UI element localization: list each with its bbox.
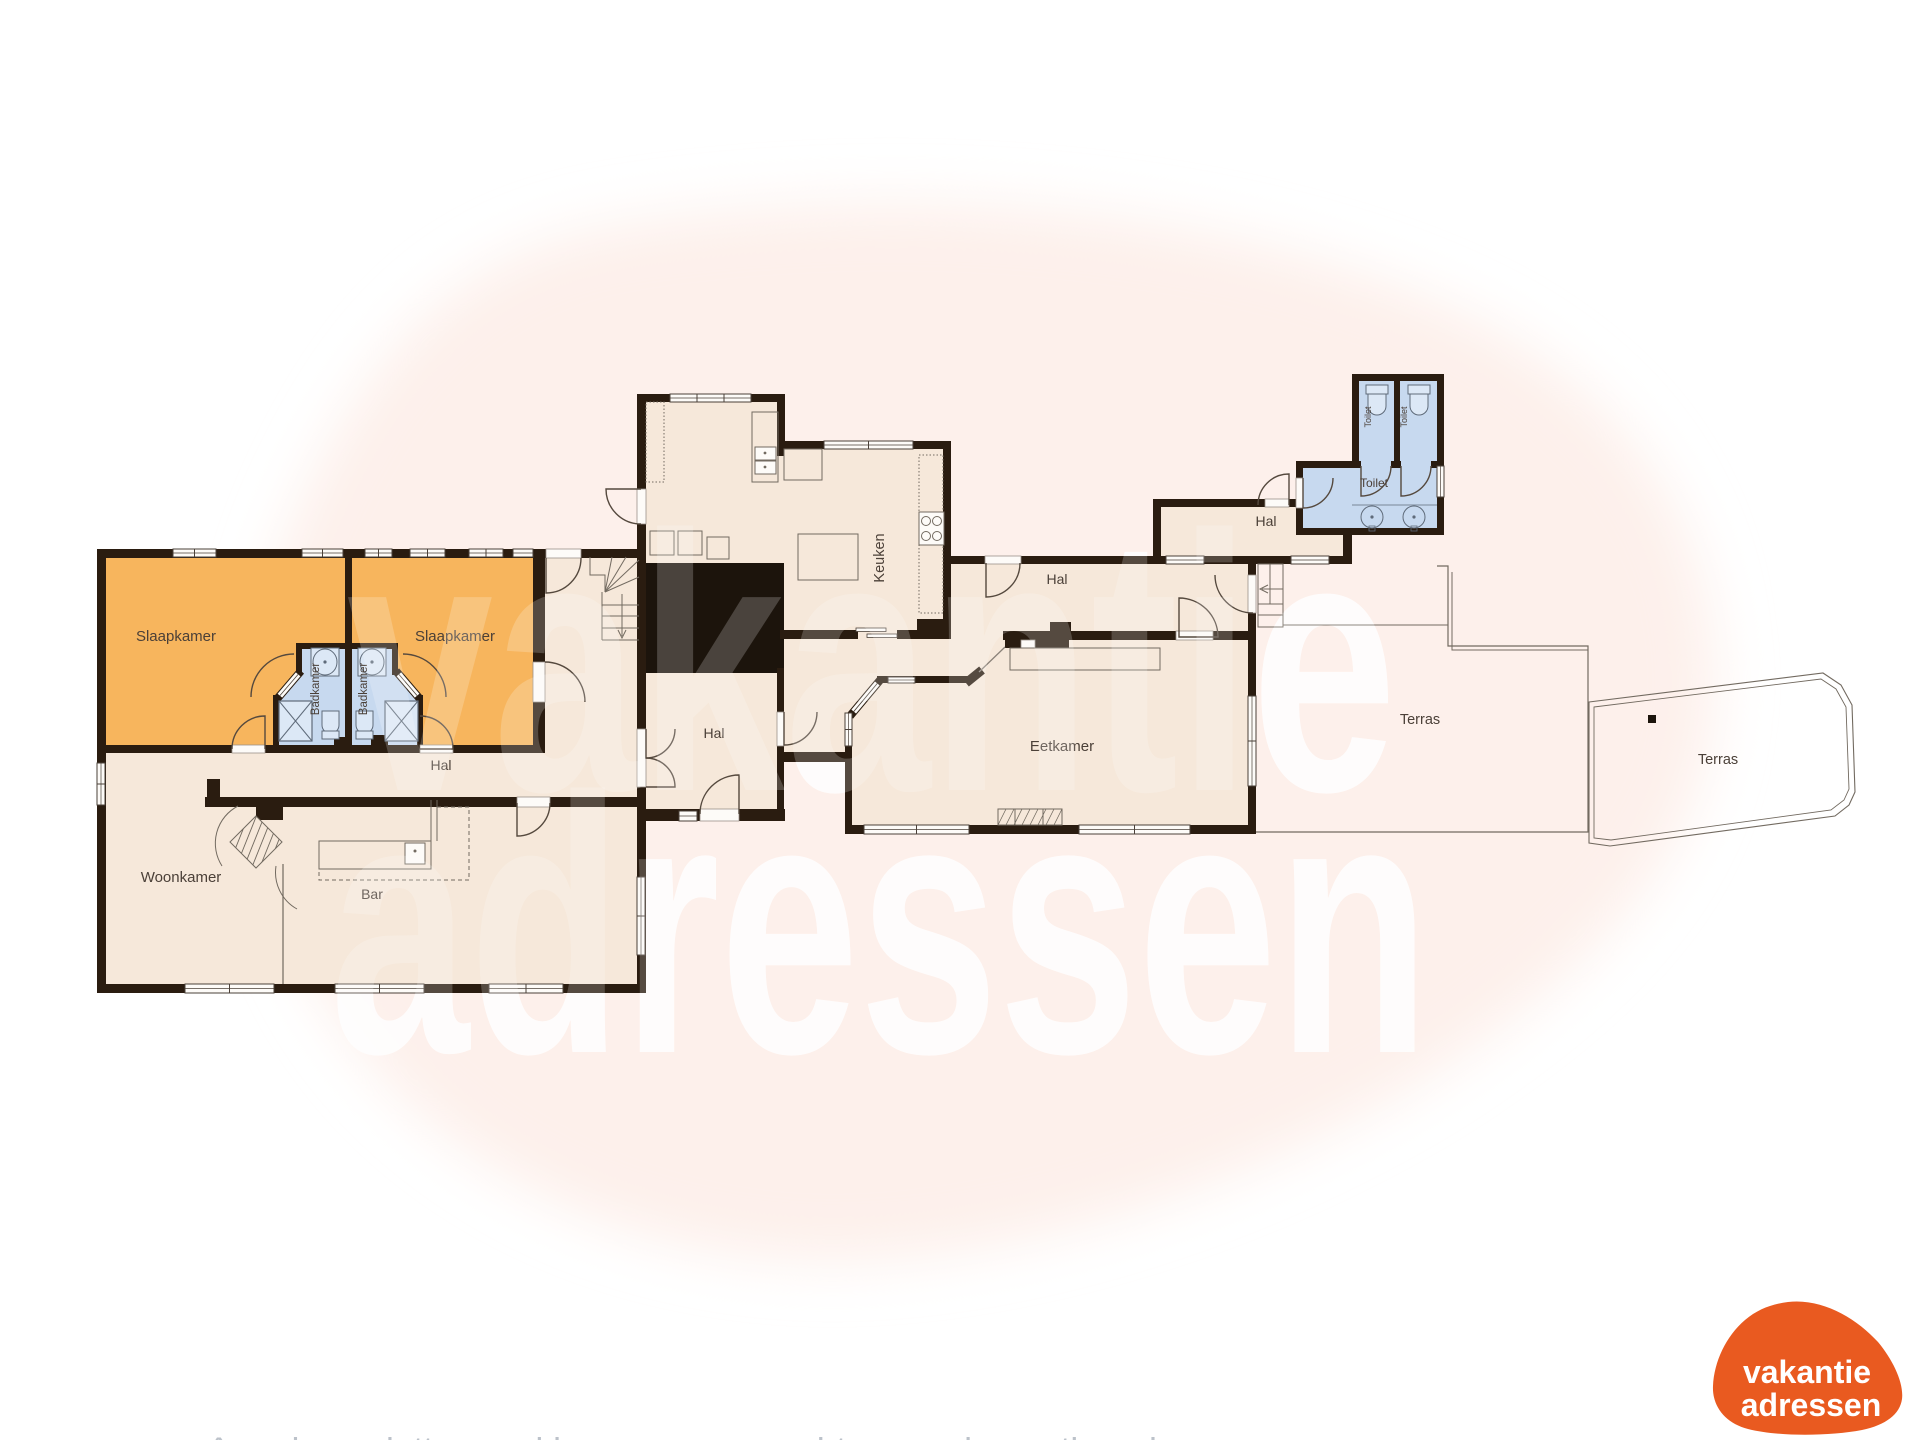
- svg-text:vakantie: vakantie: [1743, 1354, 1871, 1390]
- svg-text:Woonkamer: Woonkamer: [141, 869, 222, 886]
- svg-text:Terras: Terras: [1698, 752, 1738, 768]
- svg-text:Slaapkamer: Slaapkamer: [136, 628, 216, 645]
- svg-text:Toilet: Toilet: [1399, 406, 1409, 428]
- svg-text:Badkamer: Badkamer: [310, 663, 322, 716]
- svg-text:adressen: adressen: [1741, 1387, 1882, 1423]
- svg-text:Toilet: Toilet: [1363, 406, 1373, 428]
- svg-text:Aan deze plattegrond kunnen ge: Aan deze plattegrond kunnen geen rechten…: [207, 1433, 1157, 1440]
- svg-text:adressen: adressen: [330, 723, 1430, 1130]
